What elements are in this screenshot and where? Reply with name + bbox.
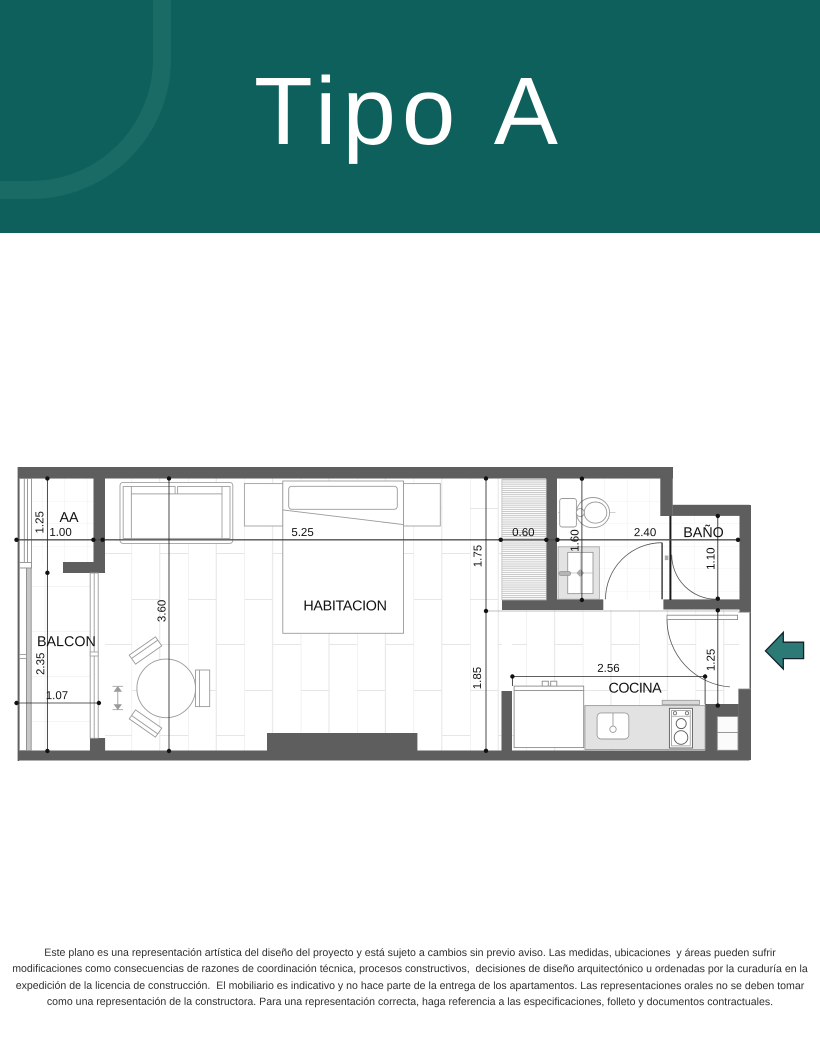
svg-text:1.75: 1.75: [473, 545, 485, 567]
svg-text:BAÑO: BAÑO: [683, 524, 724, 541]
svg-text:1.25: 1.25: [34, 511, 46, 533]
svg-text:1.25: 1.25: [706, 649, 718, 671]
svg-text:2.40: 2.40: [634, 527, 656, 539]
svg-text:5.25: 5.25: [291, 527, 313, 539]
svg-text:2.35: 2.35: [35, 653, 47, 675]
svg-text:AA: AA: [59, 510, 79, 526]
svg-text:2.56: 2.56: [597, 663, 619, 675]
svg-text:1.60: 1.60: [570, 529, 582, 551]
svg-text:COCINA: COCINA: [609, 681, 663, 697]
svg-text:1.00: 1.00: [49, 527, 71, 539]
svg-text:HABITACION: HABITACION: [303, 598, 386, 614]
svg-text:1.85: 1.85: [472, 667, 484, 689]
svg-text:1.07: 1.07: [46, 690, 68, 702]
svg-text:BALCON: BALCON: [37, 634, 96, 650]
svg-text:0.60: 0.60: [512, 527, 534, 539]
svg-text:1.10: 1.10: [706, 547, 718, 569]
svg-text:3.60: 3.60: [156, 600, 168, 622]
